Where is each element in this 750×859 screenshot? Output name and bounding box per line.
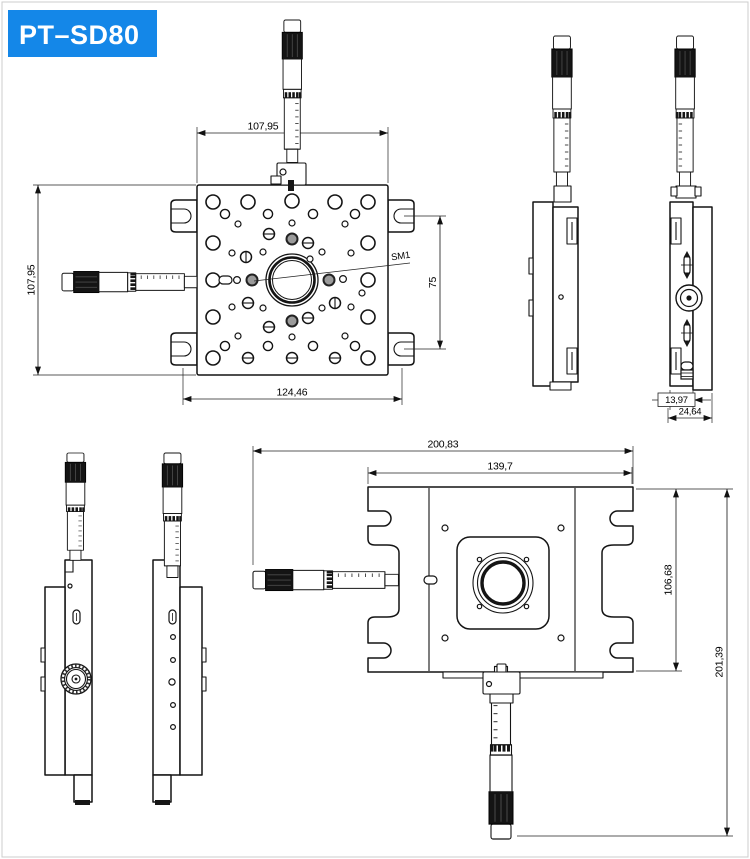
product-title: PT–SD80 (19, 20, 140, 50)
center-bore (473, 553, 533, 613)
technical-drawing-page: PT–SD80 (0, 0, 750, 859)
screw-side (681, 362, 693, 379)
top-view: SM1 107,95 107,95 124,46 75 (26, 20, 447, 405)
technical-drawing: PT–SD80 (0, 0, 750, 859)
micrometer-icon (552, 36, 572, 186)
lock-knob (676, 285, 702, 311)
bottom-view: 200,83 139,7 106,68 201,39 (253, 439, 733, 840)
mount-ear (171, 333, 197, 365)
dim-top-width-label: 107,95 (248, 121, 279, 133)
title-badge: PT–SD80 (8, 10, 157, 57)
dim-overall-height-label: 201,39 (714, 646, 726, 677)
micrometer-x-axis (62, 271, 197, 292)
micrometer-x-axis (253, 569, 399, 590)
dim-body-width-label: 139,7 (487, 461, 513, 473)
knurled-knob (61, 664, 91, 694)
dim-bottom-width-label: 124,46 (277, 387, 308, 399)
side-view-left-2 (153, 453, 206, 805)
micrometer-icon (675, 36, 695, 186)
sm1-label: SM1 (391, 250, 411, 264)
dim-plate-thickness-label: 13,97 (665, 395, 688, 406)
side-view-right-2: 13,97 24,64 (652, 36, 712, 423)
dim-slot-spacing-label: 75 (427, 277, 439, 289)
mount-ear (171, 200, 197, 232)
dim-overall-width-label: 200,83 (428, 439, 459, 451)
micrometer-icon (162, 453, 182, 578)
dim-overall-thickness-label: 24,64 (679, 407, 702, 418)
micrometer-y-axis (282, 20, 302, 163)
side-view-right-1 (529, 36, 578, 390)
side-view-dimensions: 13,97 24,64 (652, 390, 712, 423)
dim-body-height-label: 106,68 (663, 564, 675, 595)
side-view-left-1 (41, 453, 92, 805)
page-border (2, 2, 748, 857)
micrometer-icon (65, 453, 85, 560)
dim-left-height-label: 107,95 (26, 264, 38, 295)
